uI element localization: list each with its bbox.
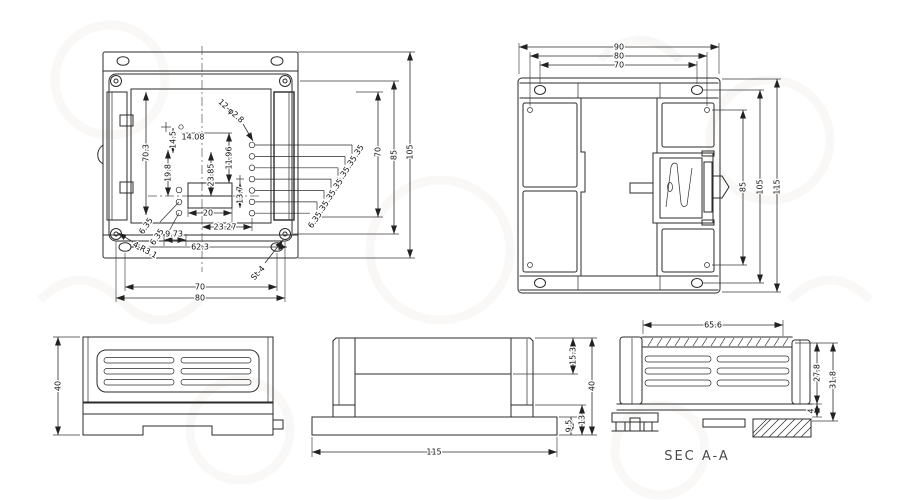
dim-label-13: 13 <box>578 415 587 425</box>
hatched-section-block <box>753 419 811 437</box>
dim-label-pitch-8: 6.35 <box>137 216 155 236</box>
dim-label-70-3: 70.3 <box>142 144 151 162</box>
dim-label-14-5: 14.5 <box>169 131 178 149</box>
dim-label-9-5: 9.5 <box>565 420 574 433</box>
dim-label-23-85: 23.85 <box>207 164 216 187</box>
bottom-view-dimensions: 90 80 70 85 105 115 <box>519 43 782 293</box>
dim-label-13-7: 13.7 <box>236 186 245 204</box>
dim-label-85b: 85 <box>739 182 748 192</box>
dim-label-85: 85 <box>390 150 399 160</box>
dim-label-9-73: 9.73 <box>165 230 183 239</box>
dim-label-105b: 105 <box>756 179 765 194</box>
dim-label-23-27: 23.27 <box>214 223 237 232</box>
section-vent-slats <box>645 356 789 386</box>
bottom-panels <box>523 98 714 276</box>
section-title: SEC A-A <box>664 449 730 464</box>
dim-label-40-front: 40 <box>588 381 597 391</box>
din-spring-symbol <box>666 163 692 207</box>
dim-label-4: 4 <box>807 408 816 413</box>
dim-label-105: 105 <box>406 144 415 159</box>
pitch-staircase <box>160 145 352 233</box>
dim-label-62-3: 62.3 <box>191 243 209 252</box>
section-outline <box>612 337 812 437</box>
dim-label-15-3: 15.3 <box>569 347 578 365</box>
callout-holes-label: 12-φ2.8 <box>216 97 245 124</box>
dim-label-115-front: 115 <box>426 448 441 457</box>
dim-label-11-96: 11.96 <box>225 147 234 170</box>
dim-label-pitch-9: 6.35 <box>148 227 166 247</box>
dim-label-70-right: 70 <box>374 147 383 157</box>
din-latch-side <box>273 420 283 429</box>
dim-label-31-8: 31.8 <box>829 371 838 389</box>
corner-screw-bosses <box>111 76 291 240</box>
dim-label-19-8: 19.8 <box>164 164 173 182</box>
dim-label-14-08: 14.08 <box>182 133 205 142</box>
drawing-svg: 70 85 105 70.3 14.5 19.8 23.85 11.96 13.… <box>0 0 900 500</box>
side-view-dimensions: 40 <box>53 337 80 435</box>
grill-edge-ticks <box>648 338 788 346</box>
dim-label-27-8: 27.8 <box>813 364 822 382</box>
dim-label-70b: 70 <box>614 61 624 70</box>
side-connector-strips <box>107 92 294 220</box>
dim-label-80b: 80 <box>614 52 624 61</box>
dim-label-115b: 115 <box>773 179 782 194</box>
din-rail-bar <box>703 419 745 427</box>
dim-label-20: 20 <box>203 209 213 218</box>
dim-label-80: 80 <box>195 294 205 303</box>
bottom-view: 90 80 70 85 105 115 <box>518 43 782 294</box>
vent-panel <box>97 350 259 392</box>
dim-label-70-bottom: 70 <box>195 283 205 292</box>
engineering-drawing-sheet: 70 85 105 70.3 14.5 19.8 23.85 11.96 13.… <box>0 0 900 500</box>
dim-label-90: 90 <box>614 43 624 52</box>
dim-label-40-side: 40 <box>54 381 63 391</box>
section-view: 65.6 27.8 31.8 4 SEC A-A <box>612 320 838 464</box>
front-outline <box>312 338 557 435</box>
dim-label-65-6: 65.6 <box>704 321 722 330</box>
din-clip-actuator-bar <box>630 183 653 193</box>
callout-screw-label: St-4 <box>249 264 267 282</box>
front-view: 15.3 40 13 9.5 115 <box>312 338 597 457</box>
side-view: 40 <box>53 337 283 435</box>
enclosure-outline <box>98 52 298 258</box>
